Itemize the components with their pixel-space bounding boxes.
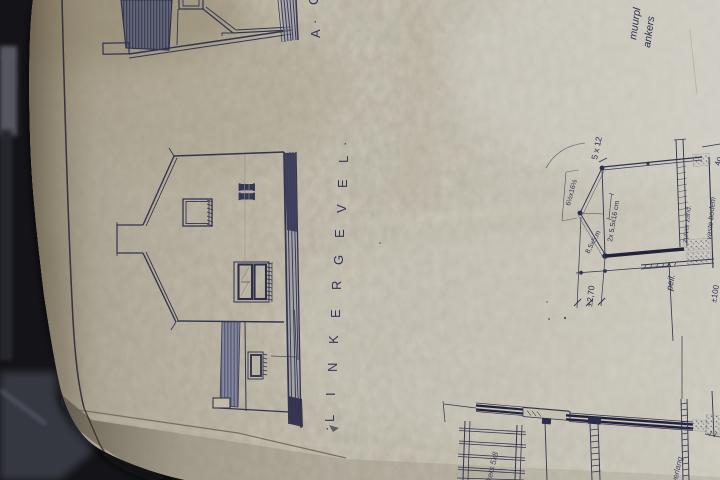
svg-text:E: E <box>332 229 347 238</box>
svg-text:4o: 4o <box>713 155 720 166</box>
svg-text:K: K <box>326 335 341 344</box>
svg-text:R: R <box>329 281 344 290</box>
svg-text:L: L <box>336 156 351 163</box>
svg-text:A: A <box>308 29 323 38</box>
svg-text:E: E <box>335 179 350 188</box>
svg-text:E: E <box>328 309 343 318</box>
svg-text:L: L <box>322 415 337 422</box>
svg-text:I: I <box>323 392 338 396</box>
svg-text:N: N <box>325 363 340 372</box>
svg-text:C: C <box>306 0 321 5</box>
svg-text:V: V <box>334 204 349 213</box>
svg-text:·: · <box>337 142 352 146</box>
svg-text:G: G <box>331 255 346 265</box>
svg-text:·: · <box>307 20 322 24</box>
svg-text:·: · <box>319 427 334 431</box>
